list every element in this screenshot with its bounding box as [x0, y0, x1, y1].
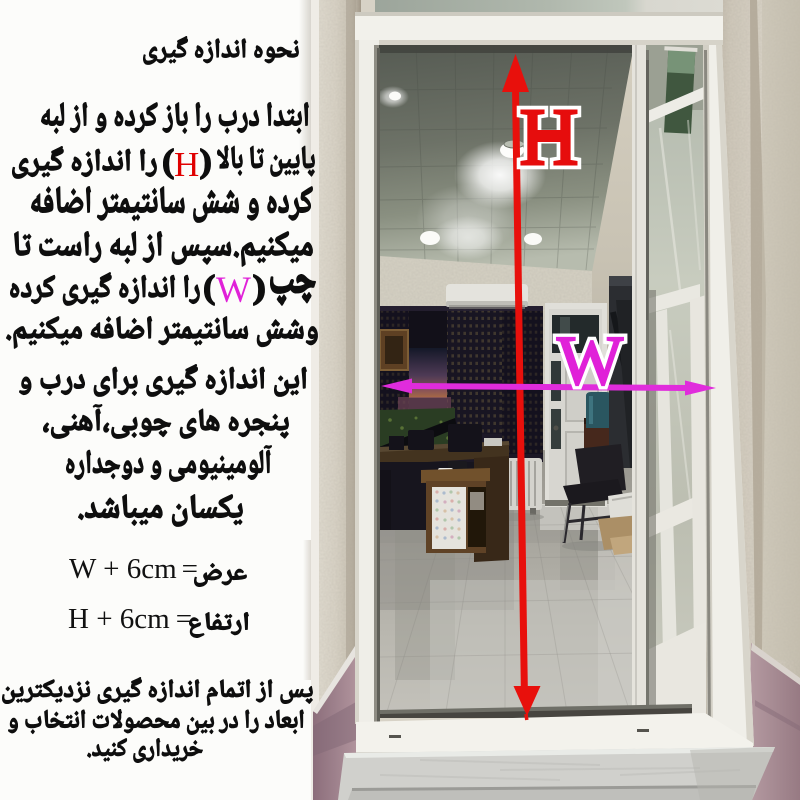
- svg-text:W: W: [557, 323, 623, 400]
